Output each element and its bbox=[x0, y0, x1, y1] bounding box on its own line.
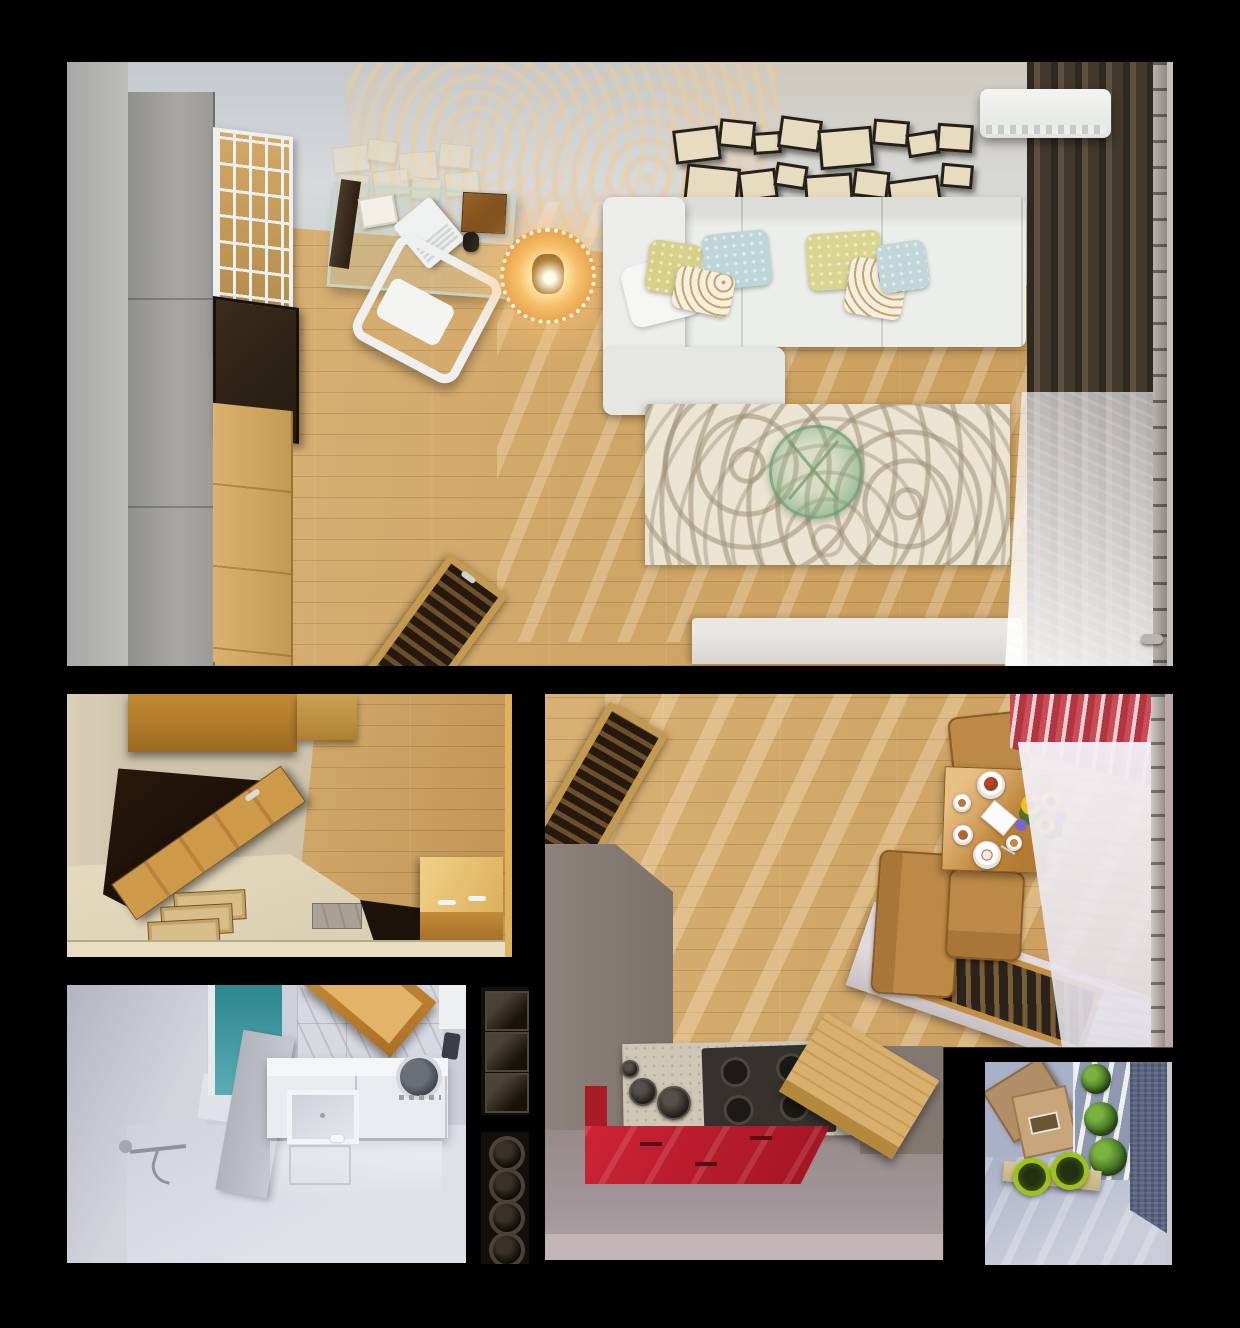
red-cabinet-left-face bbox=[585, 1086, 607, 1130]
picture-frame bbox=[366, 138, 399, 164]
hall-cabinet bbox=[128, 694, 297, 752]
balcony-frame-edge bbox=[1167, 1062, 1172, 1265]
pastries bbox=[990, 808, 1009, 826]
reflected-sink-ghost bbox=[289, 1145, 351, 1185]
picture-frame bbox=[332, 144, 371, 174]
pot bbox=[629, 1078, 657, 1106]
dessert bbox=[981, 849, 993, 861]
desk-lamp-shade bbox=[461, 192, 507, 234]
stone-step bbox=[312, 903, 362, 929]
square-niche bbox=[485, 991, 529, 1031]
pot bbox=[621, 1060, 639, 1078]
picture-frame bbox=[905, 130, 940, 159]
picture-frame bbox=[438, 143, 472, 170]
towel bbox=[441, 1032, 460, 1060]
ac-vents bbox=[986, 125, 1105, 134]
round-niche bbox=[489, 1168, 525, 1204]
cabinet-handle-slit bbox=[695, 1162, 717, 1166]
rack-square-niches bbox=[481, 987, 529, 1115]
cabinet-handle-slit bbox=[750, 1136, 772, 1140]
round-niche bbox=[489, 1136, 525, 1172]
kitchen-wall-sliver bbox=[1165, 694, 1173, 1052]
lamp-inner bbox=[532, 254, 564, 294]
picture-frame bbox=[851, 168, 890, 200]
air-conditioner bbox=[980, 89, 1111, 138]
hall-cabinet-2 bbox=[297, 694, 357, 740]
curtain-rod bbox=[1153, 62, 1167, 666]
bathroom-panel bbox=[67, 985, 466, 1263]
picture-frame bbox=[817, 126, 874, 171]
wall-edge-right bbox=[1167, 62, 1173, 666]
window-plant bbox=[1084, 1102, 1118, 1136]
textured-curtain bbox=[1130, 1062, 1168, 1234]
round-niche bbox=[489, 1200, 525, 1236]
window-handle bbox=[1141, 634, 1163, 644]
food bbox=[984, 777, 998, 791]
apartment-render bbox=[0, 0, 1240, 1328]
picture-frame bbox=[940, 163, 974, 190]
chest-handle bbox=[468, 896, 486, 901]
sink-drain bbox=[320, 1113, 325, 1118]
kitchen-curtain-rod bbox=[1151, 694, 1165, 1052]
coffee bbox=[958, 799, 966, 807]
media-bench bbox=[692, 618, 1022, 664]
ladder-handle bbox=[460, 570, 476, 584]
washer-controls bbox=[399, 1095, 441, 1100]
wood-cabinet bbox=[213, 403, 293, 666]
bath-white-cabinet bbox=[439, 985, 466, 1029]
crate-slot bbox=[1028, 1111, 1061, 1135]
food bbox=[958, 830, 968, 840]
pot bbox=[657, 1086, 691, 1120]
plate-fruit bbox=[977, 771, 1005, 799]
cabinet-handle-slit bbox=[640, 1142, 662, 1146]
picture-frame bbox=[777, 115, 823, 153]
burner bbox=[723, 1095, 754, 1126]
dining-chair-bottom bbox=[945, 868, 1026, 962]
window-plant bbox=[1081, 1064, 1111, 1094]
balcony-panel bbox=[985, 1062, 1172, 1265]
wooden-chest-top bbox=[420, 857, 503, 912]
pillow-blue bbox=[875, 239, 930, 294]
burner bbox=[720, 1057, 751, 1088]
glow-lamp-table bbox=[500, 228, 596, 324]
left-wall bbox=[67, 62, 128, 666]
square-niche bbox=[485, 1032, 529, 1072]
kitchen-floor-light-strip bbox=[545, 1234, 943, 1260]
round-niche bbox=[489, 1232, 525, 1264]
living-room-panel bbox=[67, 62, 1173, 666]
hallway-panel bbox=[67, 694, 512, 957]
plate-small bbox=[953, 825, 973, 845]
chair-seat bbox=[374, 276, 456, 348]
glass-coffee-table bbox=[769, 425, 863, 519]
door-handle bbox=[244, 788, 261, 802]
washing-machine-door bbox=[396, 1054, 442, 1100]
red-cabinet-front bbox=[585, 1126, 830, 1184]
open-book bbox=[358, 193, 399, 229]
picture-frame bbox=[872, 118, 910, 147]
wardrobe bbox=[128, 92, 215, 666]
shower-head bbox=[119, 1140, 132, 1153]
rack-round-niches bbox=[481, 1132, 529, 1264]
picture-frame bbox=[672, 125, 722, 164]
lime-grass-pot bbox=[1013, 1158, 1051, 1196]
headphones bbox=[463, 232, 479, 252]
coffee-cup bbox=[953, 794, 971, 812]
hall-right-sliver bbox=[505, 694, 512, 957]
purple-flower bbox=[1015, 819, 1027, 831]
sheer-curtain bbox=[1005, 392, 1173, 666]
chest-handle bbox=[438, 900, 456, 905]
picture-frame bbox=[718, 118, 757, 150]
threshold-strip bbox=[67, 940, 512, 957]
plate-dessert bbox=[973, 841, 1001, 869]
lime-grass-pot bbox=[1051, 1152, 1089, 1190]
wooden-crate bbox=[987, 1064, 1073, 1156]
crate-board bbox=[1011, 1085, 1079, 1159]
picture-frame bbox=[936, 123, 974, 153]
sink-basin bbox=[287, 1090, 359, 1144]
square-niche bbox=[485, 1073, 529, 1113]
